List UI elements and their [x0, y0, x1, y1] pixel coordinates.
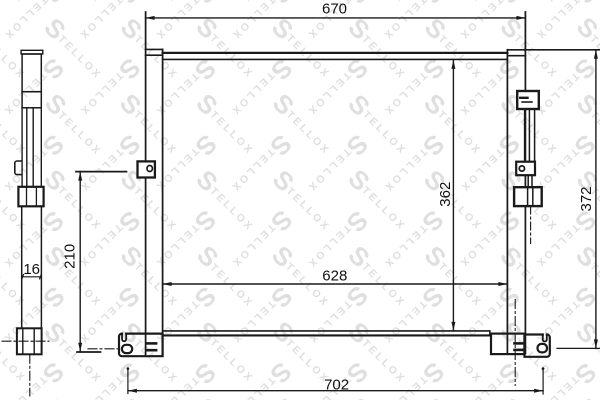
svg-text:TELLOX: TELLOX [0, 33, 28, 82]
svg-text:TELLOX: TELLOX [76, 0, 125, 42]
svg-text:16: 16 [23, 261, 40, 278]
svg-text:TELLOX: TELLOX [0, 185, 28, 234]
svg-text:TELLOX: TELLOX [0, 0, 28, 6]
svg-text:S: S [571, 392, 600, 400]
svg-text:628: 628 [322, 268, 347, 285]
svg-text:TELLOX: TELLOX [152, 0, 201, 42]
svg-text:S: S [418, 392, 451, 400]
svg-text:372: 372 [578, 186, 595, 211]
svg-text:S: S [38, 392, 71, 400]
svg-text:TELLOX: TELLOX [380, 0, 429, 42]
svg-text:TELLOX: TELLOX [533, 0, 582, 42]
svg-text:362: 362 [437, 182, 454, 207]
svg-text:TELLOX: TELLOX [0, 336, 28, 385]
svg-text:210: 210 [62, 244, 79, 269]
svg-text:S: S [190, 392, 223, 400]
svg-text:S: S [267, 392, 300, 400]
svg-text:S: S [114, 392, 147, 400]
svg-text:TELLOX: TELLOX [456, 0, 505, 42]
svg-text:S: S [494, 392, 527, 400]
svg-text:702: 702 [324, 376, 349, 393]
svg-text:670: 670 [322, 1, 347, 18]
svg-text:TELLOX: TELLOX [0, 109, 28, 158]
